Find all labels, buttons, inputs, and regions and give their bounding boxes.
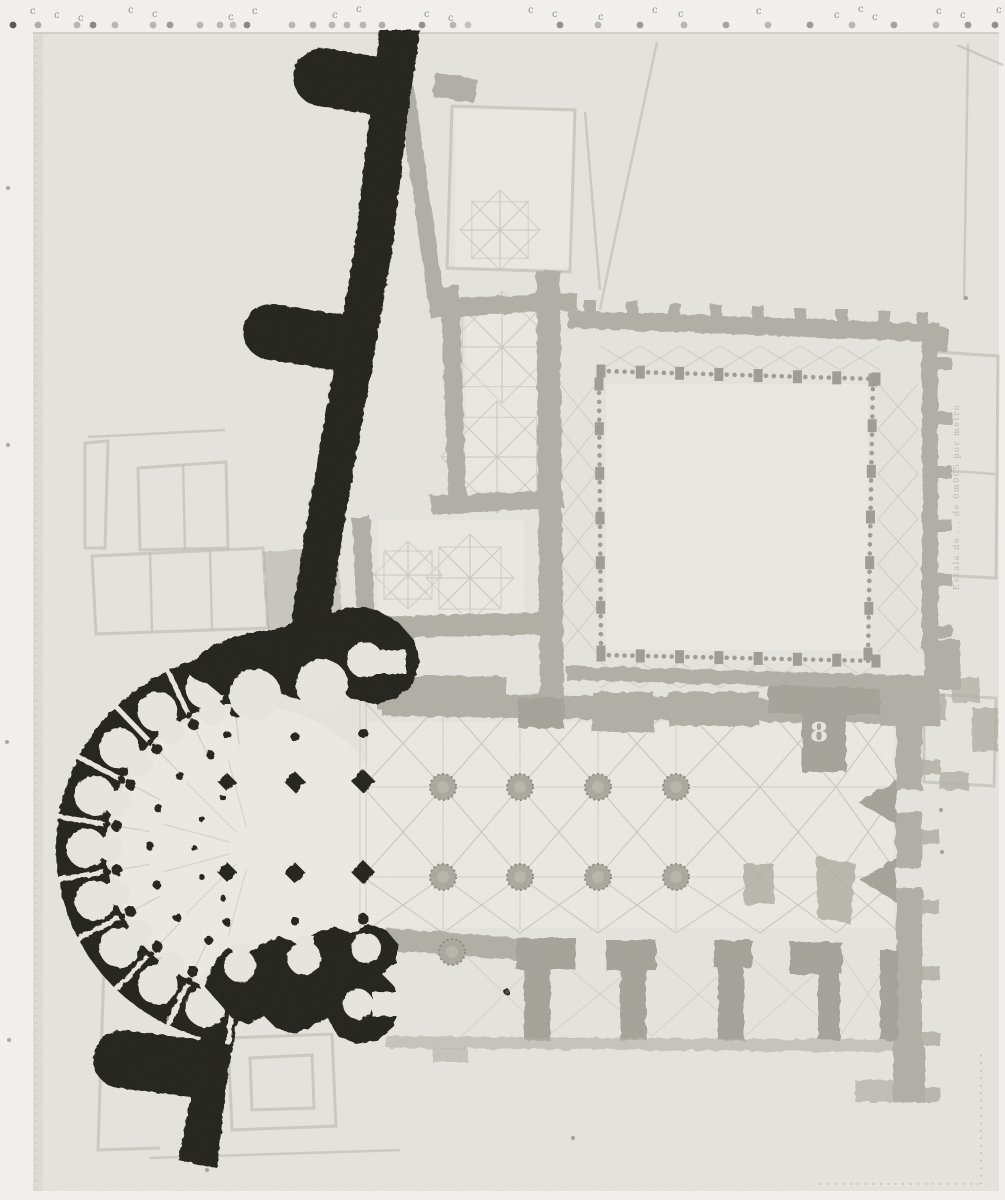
registration-dot — [637, 22, 644, 29]
registration-c-mark: c — [678, 9, 684, 20]
registration-dot — [992, 22, 999, 29]
registration-c-mark: c — [756, 6, 762, 17]
registration-dot — [150, 22, 157, 29]
registration-dot — [891, 22, 898, 29]
registration-dot — [197, 22, 204, 29]
registration-dot — [112, 22, 119, 29]
paper-speck — [7, 1038, 11, 1042]
registration-dot — [933, 22, 940, 29]
registration-c-mark: c — [960, 10, 966, 21]
registration-dot — [10, 22, 17, 29]
registration-dot — [344, 22, 351, 29]
registration-dot — [965, 22, 972, 29]
registration-c-mark: c — [936, 6, 942, 17]
registration-c-mark: c — [858, 4, 864, 15]
registration-dot — [217, 22, 224, 29]
registration-dot — [379, 22, 386, 29]
registration-c-mark: c — [598, 12, 604, 23]
registration-c-mark: c — [834, 10, 840, 21]
paper-speck — [6, 443, 10, 447]
registration-dot — [167, 22, 174, 29]
registration-c-mark: c — [152, 9, 158, 20]
registration-dot — [310, 22, 317, 29]
scanned-plate-page: ccccccccccccccccccccccc Escala de ... de… — [0, 0, 1005, 1200]
registration-c-mark: c — [356, 4, 362, 15]
registration-c-mark: c — [424, 9, 430, 20]
registration-dot — [557, 22, 564, 29]
registration-dot — [450, 22, 457, 29]
paper-speck — [6, 186, 10, 190]
registration-dot — [360, 22, 367, 29]
registration-c-mark: c — [128, 5, 134, 16]
registration-c-mark: c — [228, 12, 234, 23]
registration-c-mark: c — [996, 5, 1002, 16]
registration-c-mark: c — [332, 10, 338, 21]
registration-dot — [419, 22, 426, 29]
registration-dot — [681, 22, 688, 29]
registration-c-mark: c — [652, 5, 658, 16]
registration-dot — [329, 22, 336, 29]
registration-dot — [723, 22, 730, 29]
registration-dot — [849, 22, 856, 29]
registration-dot — [289, 22, 296, 29]
registration-c-mark: c — [528, 5, 534, 16]
registration-dot — [465, 22, 472, 29]
registration-dot — [230, 22, 237, 29]
registration-c-mark: c — [54, 10, 60, 21]
registration-c-mark: c — [252, 6, 258, 17]
registration-c-mark: c — [872, 12, 878, 23]
registration-dot — [74, 22, 81, 29]
registration-dot — [244, 22, 251, 29]
registration-c-mark: c — [552, 9, 558, 20]
paper-speck — [5, 740, 9, 744]
registration-dot — [807, 22, 814, 29]
registration-dot — [35, 22, 42, 29]
halftone-grain — [33, 33, 999, 1191]
registration-dot — [595, 22, 602, 29]
registration-dot — [765, 22, 772, 29]
registration-c-mark: c — [30, 6, 36, 17]
registration-dot — [90, 22, 97, 29]
cathedral-plan-drawing: ccccccccccccccccccccccc — [0, 0, 1005, 1200]
